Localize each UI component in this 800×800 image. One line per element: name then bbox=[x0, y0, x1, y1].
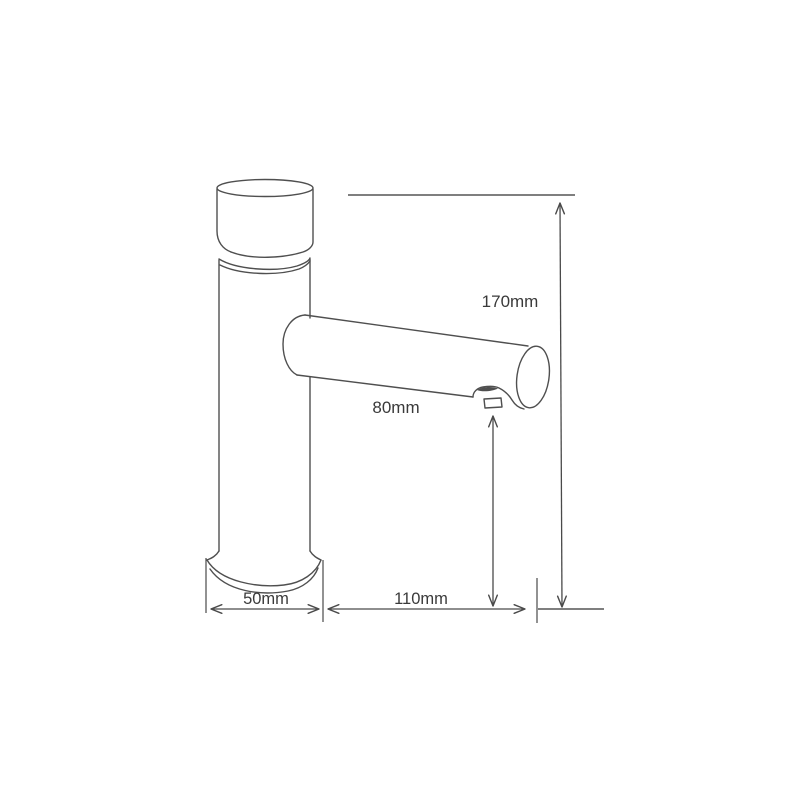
dimension-label-overall-height: 170mm bbox=[482, 292, 539, 311]
faucet-aerator-outlet bbox=[484, 398, 502, 408]
technical-drawing-page: 170mm 80mm 50mm 110mm bbox=[0, 0, 800, 800]
faucet-drawing bbox=[207, 180, 553, 593]
faucet-spout-top-edge bbox=[305, 315, 528, 346]
faucet-spout-bottom-edge bbox=[297, 375, 473, 397]
faucet-handle-bottom bbox=[231, 189, 313, 257]
faucet-neck-arc-lower bbox=[220, 261, 310, 274]
faucet-base-flare-right bbox=[310, 551, 321, 560]
faucet-spout-end-ellipse bbox=[513, 344, 553, 410]
dimension-label-base-width: 50mm bbox=[243, 590, 289, 608]
dimension-label-spout-height: 80mm bbox=[372, 398, 419, 417]
faucet-handle-top-ellipse bbox=[217, 180, 313, 197]
faucet-neck-arc-upper bbox=[219, 258, 310, 269]
dimension-annotations: 170mm 80mm 50mm 110mm bbox=[206, 195, 604, 623]
faucet-handle-left-side bbox=[217, 189, 231, 252]
faucet-base-flare-left bbox=[207, 551, 219, 560]
dimension-label-spout-reach: 110mm bbox=[394, 590, 448, 608]
faucet-technical-drawing: 170mm 80mm 50mm 110mm bbox=[0, 0, 800, 800]
faucet-spout-left-cap bbox=[283, 315, 305, 375]
dimension-arrow-overall-height bbox=[560, 203, 562, 607]
